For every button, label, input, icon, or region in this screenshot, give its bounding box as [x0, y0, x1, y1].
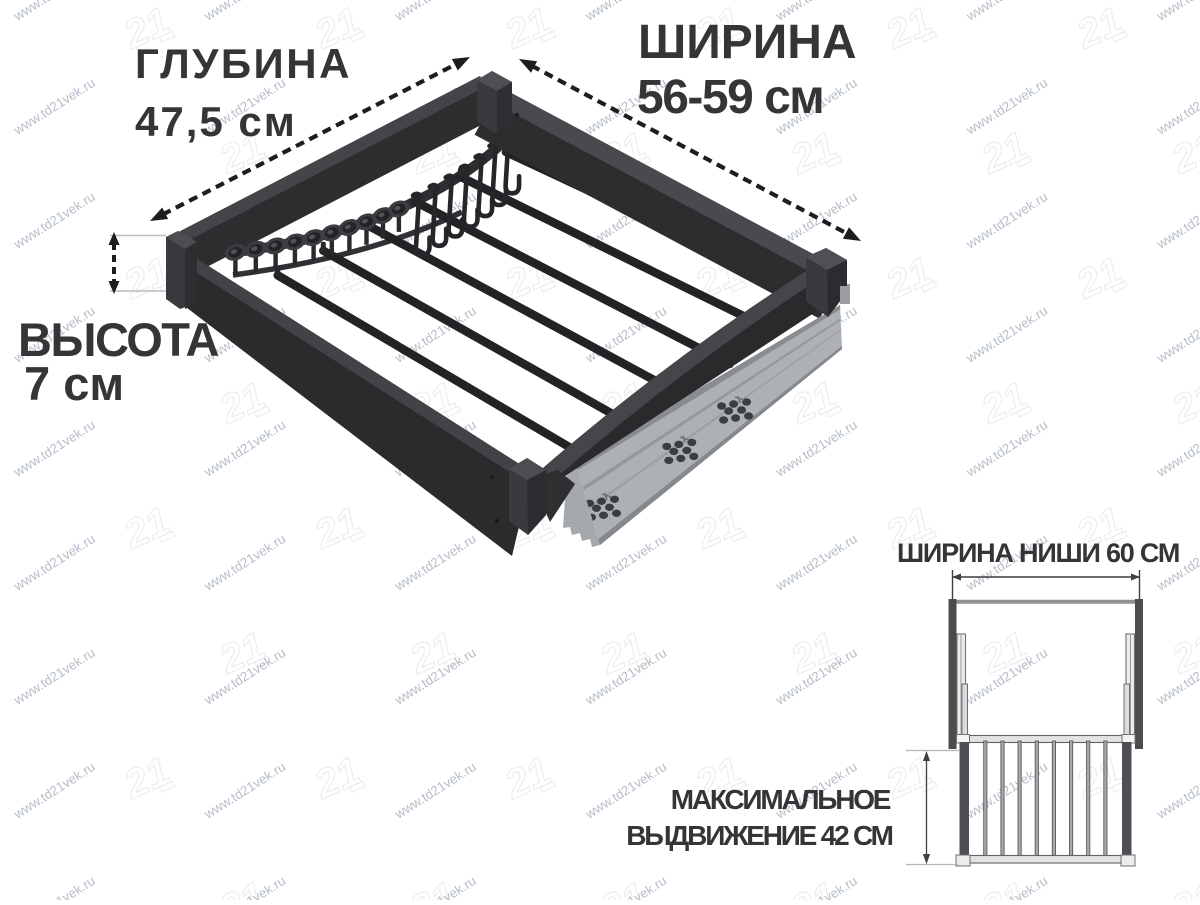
svg-text:56-59 см: 56-59 см — [637, 71, 823, 124]
svg-text:ШИРИНА: ШИРИНА — [638, 16, 857, 69]
svg-text:7 см: 7 см — [24, 357, 124, 410]
svg-text:ШИРИНА НИШИ 60 СМ: ШИРИНА НИШИ 60 СМ — [897, 538, 1179, 568]
svg-text:ВЫДВИЖЕНИЕ 42 СМ: ВЫДВИЖЕНИЕ 42 СМ — [626, 820, 892, 851]
svg-text:47,5 см: 47,5 см — [135, 98, 297, 145]
svg-text:МАКСИМАЛЬНОЕ: МАКСИМАЛЬНОЕ — [671, 784, 891, 815]
svg-text:ГЛУБИНА: ГЛУБИНА — [135, 40, 352, 87]
